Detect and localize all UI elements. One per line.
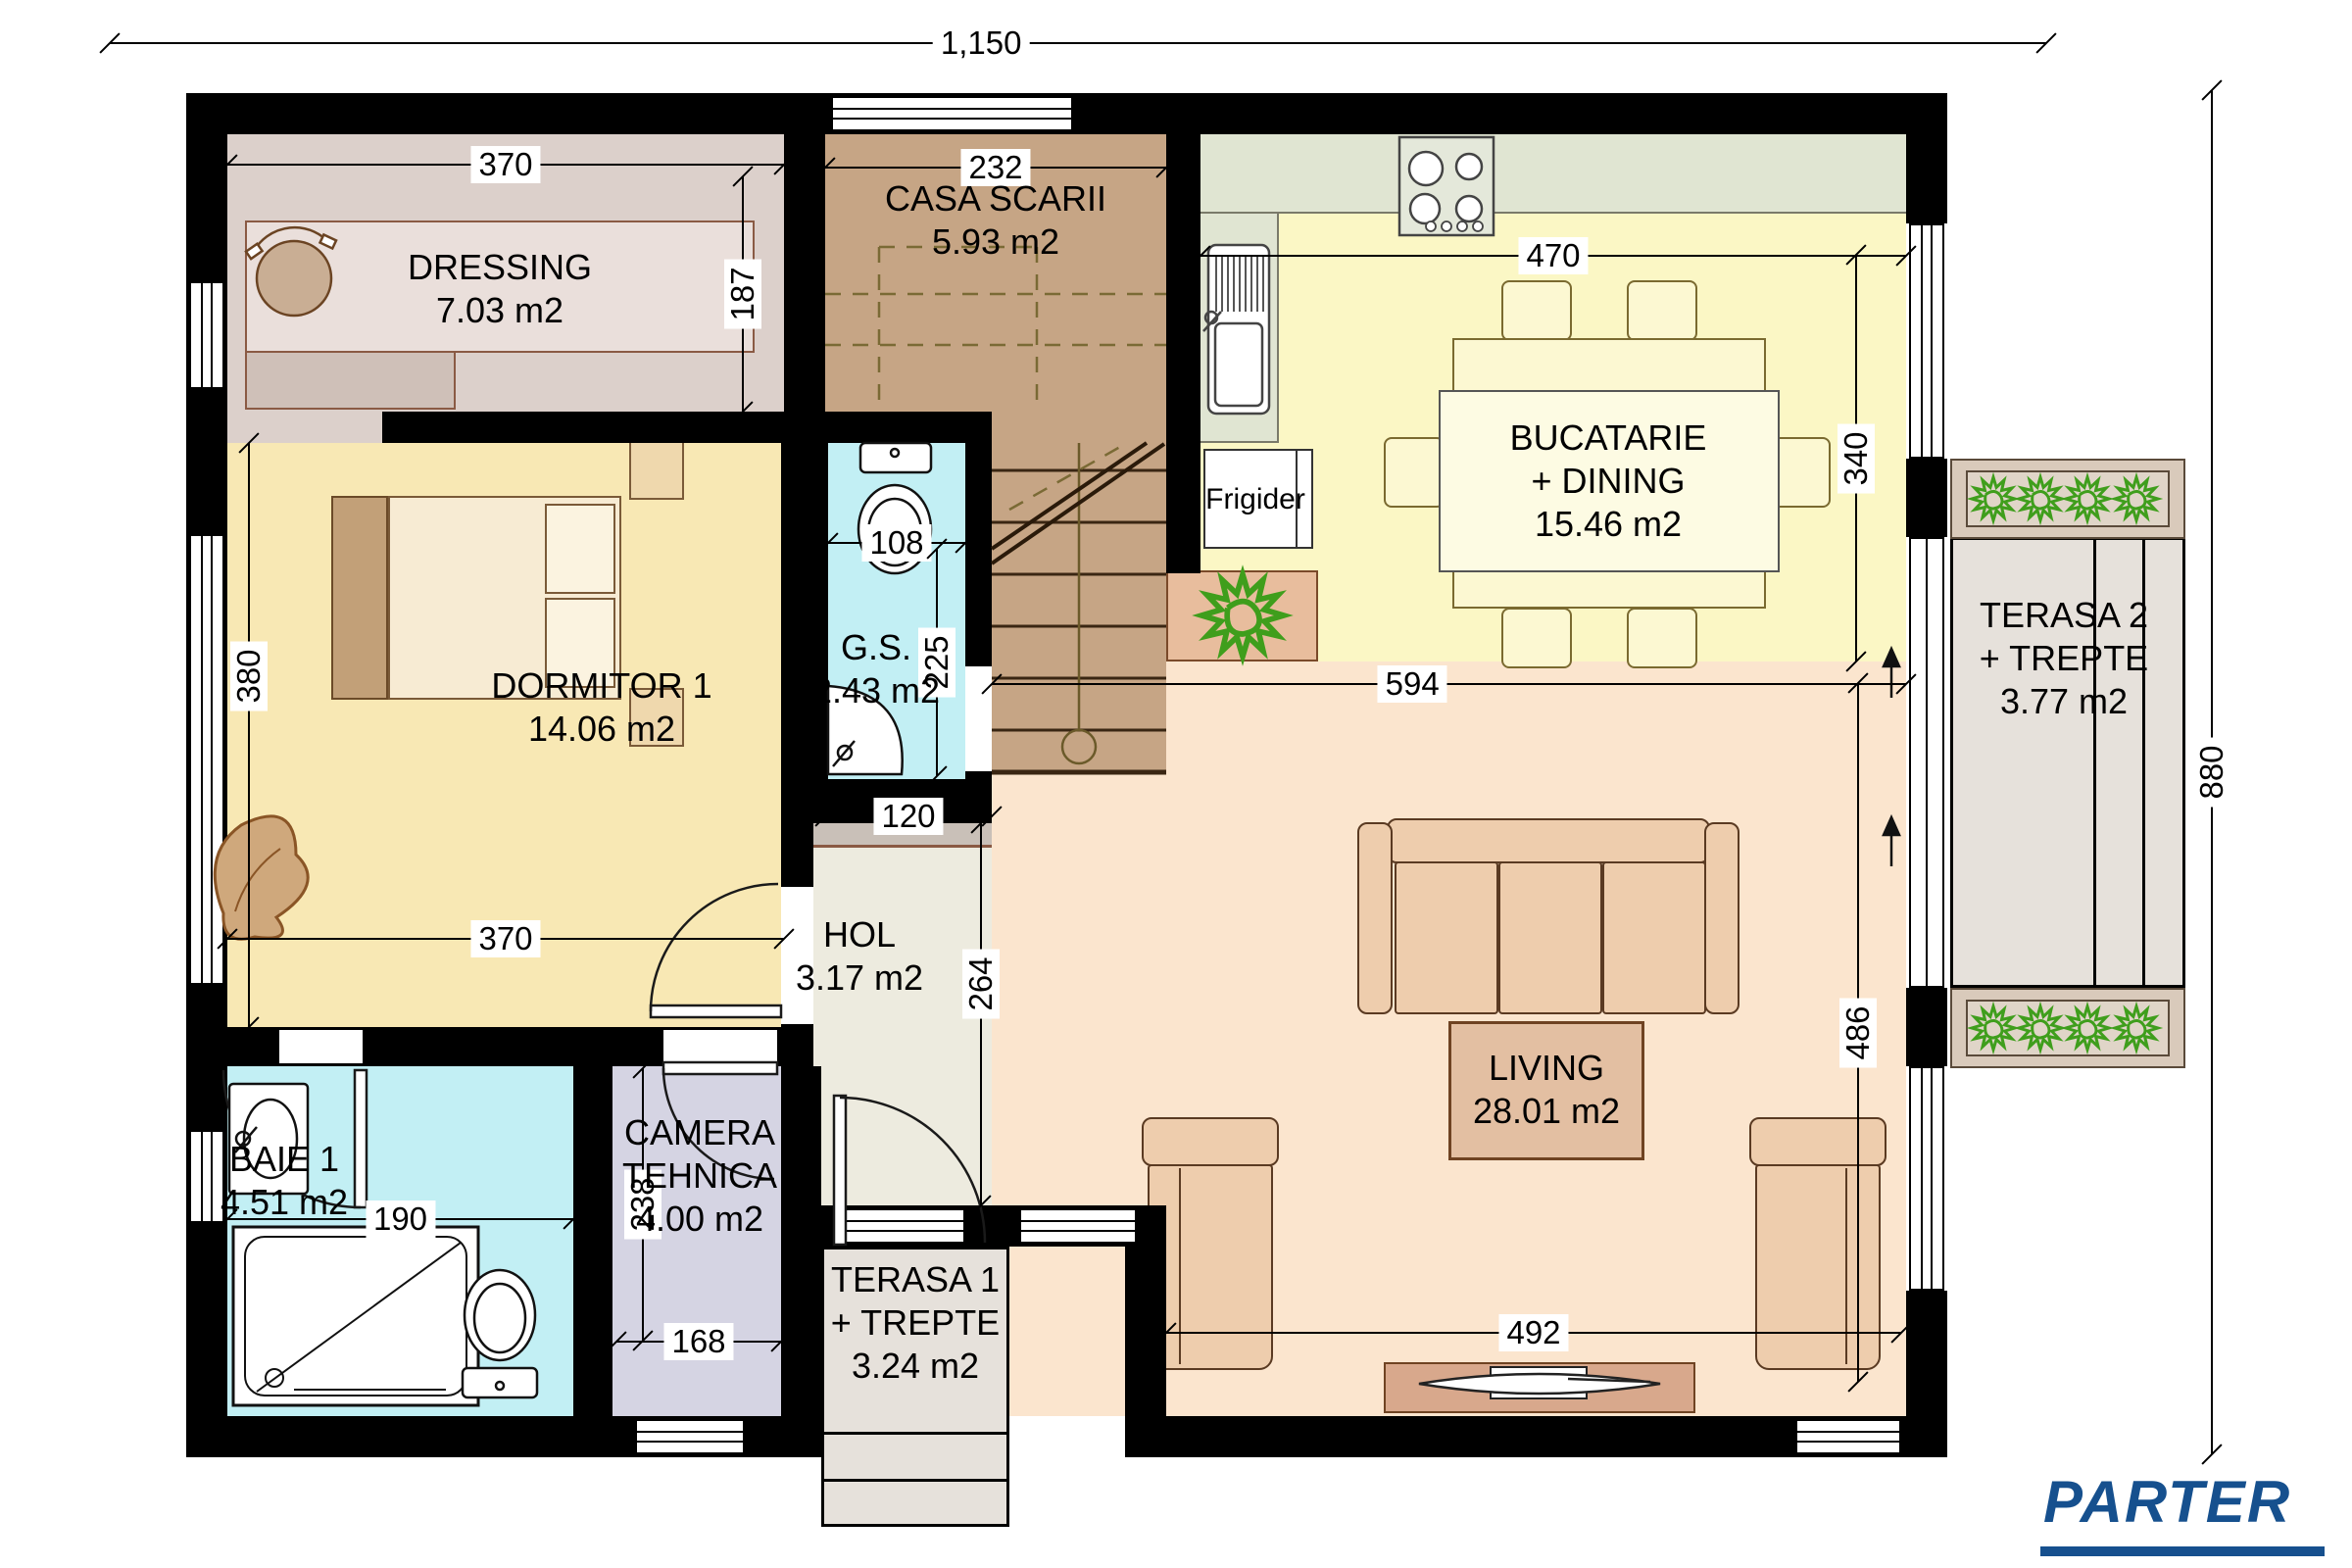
dining-chair-top-1 <box>1501 280 1572 341</box>
terasa1-step-1 <box>821 1435 1009 1482</box>
window-casa-scarii <box>831 96 1073 131</box>
wall-ct-right <box>781 1066 821 1457</box>
window-living-right <box>1909 1066 1944 1291</box>
dining-chair-top-2 <box>1627 280 1697 341</box>
room-area: 14.06 m2 <box>491 708 711 751</box>
room-name-2: TEHNICA <box>622 1154 777 1198</box>
dim-living-width-top: 594 <box>992 683 1906 685</box>
bed-headboard <box>331 496 388 700</box>
room-area: 5.93 m2 <box>885 220 1106 264</box>
room-area: 2.43 m2 <box>812 669 940 712</box>
dining-chair-left <box>1384 437 1445 508</box>
room-area: 28.01 m2 <box>1473 1090 1620 1133</box>
room-name: CASA SCARII <box>885 177 1106 220</box>
bed-pillow-1 <box>545 504 615 594</box>
nightstand-1 <box>629 441 684 500</box>
label-fridge: Frigider <box>1205 478 1305 521</box>
floor-plan: 1,150 880 370 187 232 470 340 108 225 38… <box>0 0 2352 1568</box>
wall-baie-ct <box>573 1066 612 1416</box>
terrace-door-glass <box>1909 537 1944 988</box>
wall-right-1 <box>1906 93 1947 223</box>
room-area: 7.03 m2 <box>408 289 592 332</box>
terasa1-step-2 <box>821 1482 1009 1527</box>
label-dormitor: DORMITOR 1 14.06 m2 <box>491 664 711 751</box>
room-area: 3.17 m2 <box>796 956 923 1000</box>
dim-hall-niche: 120 <box>825 815 992 817</box>
label-terasa1: TERASA 1 + TREPTE 3.24 m2 <box>831 1258 1000 1388</box>
window-baie <box>189 1130 224 1223</box>
room-name: BUCATARIE <box>1510 416 1707 460</box>
sofa-seat-3 <box>1602 861 1706 1014</box>
label-casa-scarii: CASA SCARII 5.93 m2 <box>885 177 1106 264</box>
room-stairs-lower-floor <box>992 443 1166 774</box>
window-ct-bottom <box>635 1419 745 1454</box>
entrance-door-threshold <box>833 1208 965 1244</box>
room-name: TERASA 2 <box>1980 594 2148 637</box>
room-name: DRESSING <box>408 246 592 289</box>
title-underline <box>2040 1546 2325 1556</box>
dim-stairwell-width: 232 <box>825 167 1166 169</box>
sofa-back <box>1387 818 1710 863</box>
label-hol: HOL 3.17 m2 <box>796 913 923 1000</box>
sofa-seat-1 <box>1395 861 1498 1014</box>
dim-total-width: 1,150 <box>110 42 2046 44</box>
dim-bedroom-width: 370 <box>227 938 784 940</box>
room-name: CAMERA <box>622 1111 777 1154</box>
wall-gs-left <box>781 443 828 779</box>
room-baie-floor <box>227 1066 573 1416</box>
dining-chair-bottom-2 <box>1627 608 1697 668</box>
kitchen-counter-left <box>1200 214 1279 443</box>
room-area: 3.24 m2 <box>831 1345 1000 1388</box>
window-living-sw <box>1019 1208 1137 1244</box>
label-bucatarie: BUCATARIE + DINING 15.46 m2 <box>1510 416 1707 546</box>
terasa2-planter-top-inner <box>1966 470 2170 527</box>
dim-dressing-width: 370 <box>227 164 784 166</box>
room-area: 15.46 m2 <box>1510 503 1707 546</box>
window-living-bottom <box>1795 1419 1901 1454</box>
dim-tech-width: 168 <box>616 1341 781 1343</box>
label-baie: BAIE 1 4.51 m2 <box>220 1138 348 1224</box>
dining-chair-bottom-1 <box>1501 608 1572 668</box>
wall-dressing-bottom <box>382 412 992 443</box>
sofa-seat-2 <box>1498 861 1602 1014</box>
kitchen-planter-box <box>1166 570 1318 661</box>
label-terasa2: TERASA 2 + TREPTE 3.77 m2 <box>1980 594 2148 723</box>
dim-total-height: 880 <box>2211 90 2213 1454</box>
label-dressing: DRESSING 7.03 m2 <box>408 246 592 332</box>
room-name: TERASA 1 <box>831 1258 1000 1301</box>
sofa <box>1357 818 1739 1019</box>
sofa-arm-right <box>1704 822 1739 1014</box>
title-text: PARTER <box>2043 1469 2291 1535</box>
tv-box <box>1490 1366 1588 1399</box>
room-name-2: + TREPTE <box>1980 637 2148 680</box>
page-title: PARTER <box>2043 1468 2291 1536</box>
label-gs: G.S. 2.43 m2 <box>812 626 940 712</box>
dim-living-depth: 486 <box>1857 683 1859 1382</box>
fridge-text: Frigider <box>1205 478 1305 521</box>
room-name-2: + TREPTE <box>831 1301 1000 1345</box>
wall-dressing-right <box>784 93 825 443</box>
room-name: G.S. <box>812 626 940 669</box>
room-name-2: + DINING <box>1510 460 1707 503</box>
room-name: BAIE 1 <box>220 1138 348 1181</box>
dim-dressing-depth: 187 <box>742 176 744 412</box>
wall-right-2 <box>1906 459 1947 537</box>
dim-kitchen-depth: 340 <box>1855 255 1857 661</box>
door-gap-ct <box>663 1030 777 1063</box>
room-name: LIVING <box>1473 1047 1620 1090</box>
window-dressing <box>189 281 224 389</box>
dim-living-width-bottom: 492 <box>1166 1332 1901 1334</box>
room-area: 3.77 m2 <box>1980 680 2148 723</box>
label-camera-tehnica: CAMERA TEHNICA 4.00 m2 <box>622 1111 777 1241</box>
window-kitchen <box>1909 223 1944 459</box>
wall-living-sw-vert <box>1125 1247 1166 1416</box>
dressing-wardrobe-lower <box>245 353 456 410</box>
window-dormitor <box>189 534 224 985</box>
room-gs-floor <box>828 443 965 779</box>
terasa2-planter-bottom-inner <box>1966 1000 2170 1056</box>
room-area: 4.00 m2 <box>622 1198 777 1241</box>
wall-right-3 <box>1906 988 1947 1066</box>
room-hol-floor <box>813 848 992 1205</box>
sofa-arm-left <box>1357 822 1393 1014</box>
armchair-right <box>1749 1117 1886 1372</box>
dim-hall-depth: 264 <box>980 823 982 1205</box>
kitchen-counter-top <box>1200 134 1906 214</box>
label-living: LIVING 28.01 m2 <box>1473 1047 1620 1133</box>
dim-kitchen-width: 470 <box>1200 255 1906 257</box>
door-gap-baie <box>279 1030 363 1063</box>
door-gap-gs <box>965 666 992 771</box>
room-area: 4.51 m2 <box>220 1181 348 1224</box>
room-name: DORMITOR 1 <box>491 664 711 708</box>
room-name: HOL <box>796 913 923 956</box>
wall-stairs-kitchen <box>1166 93 1200 573</box>
